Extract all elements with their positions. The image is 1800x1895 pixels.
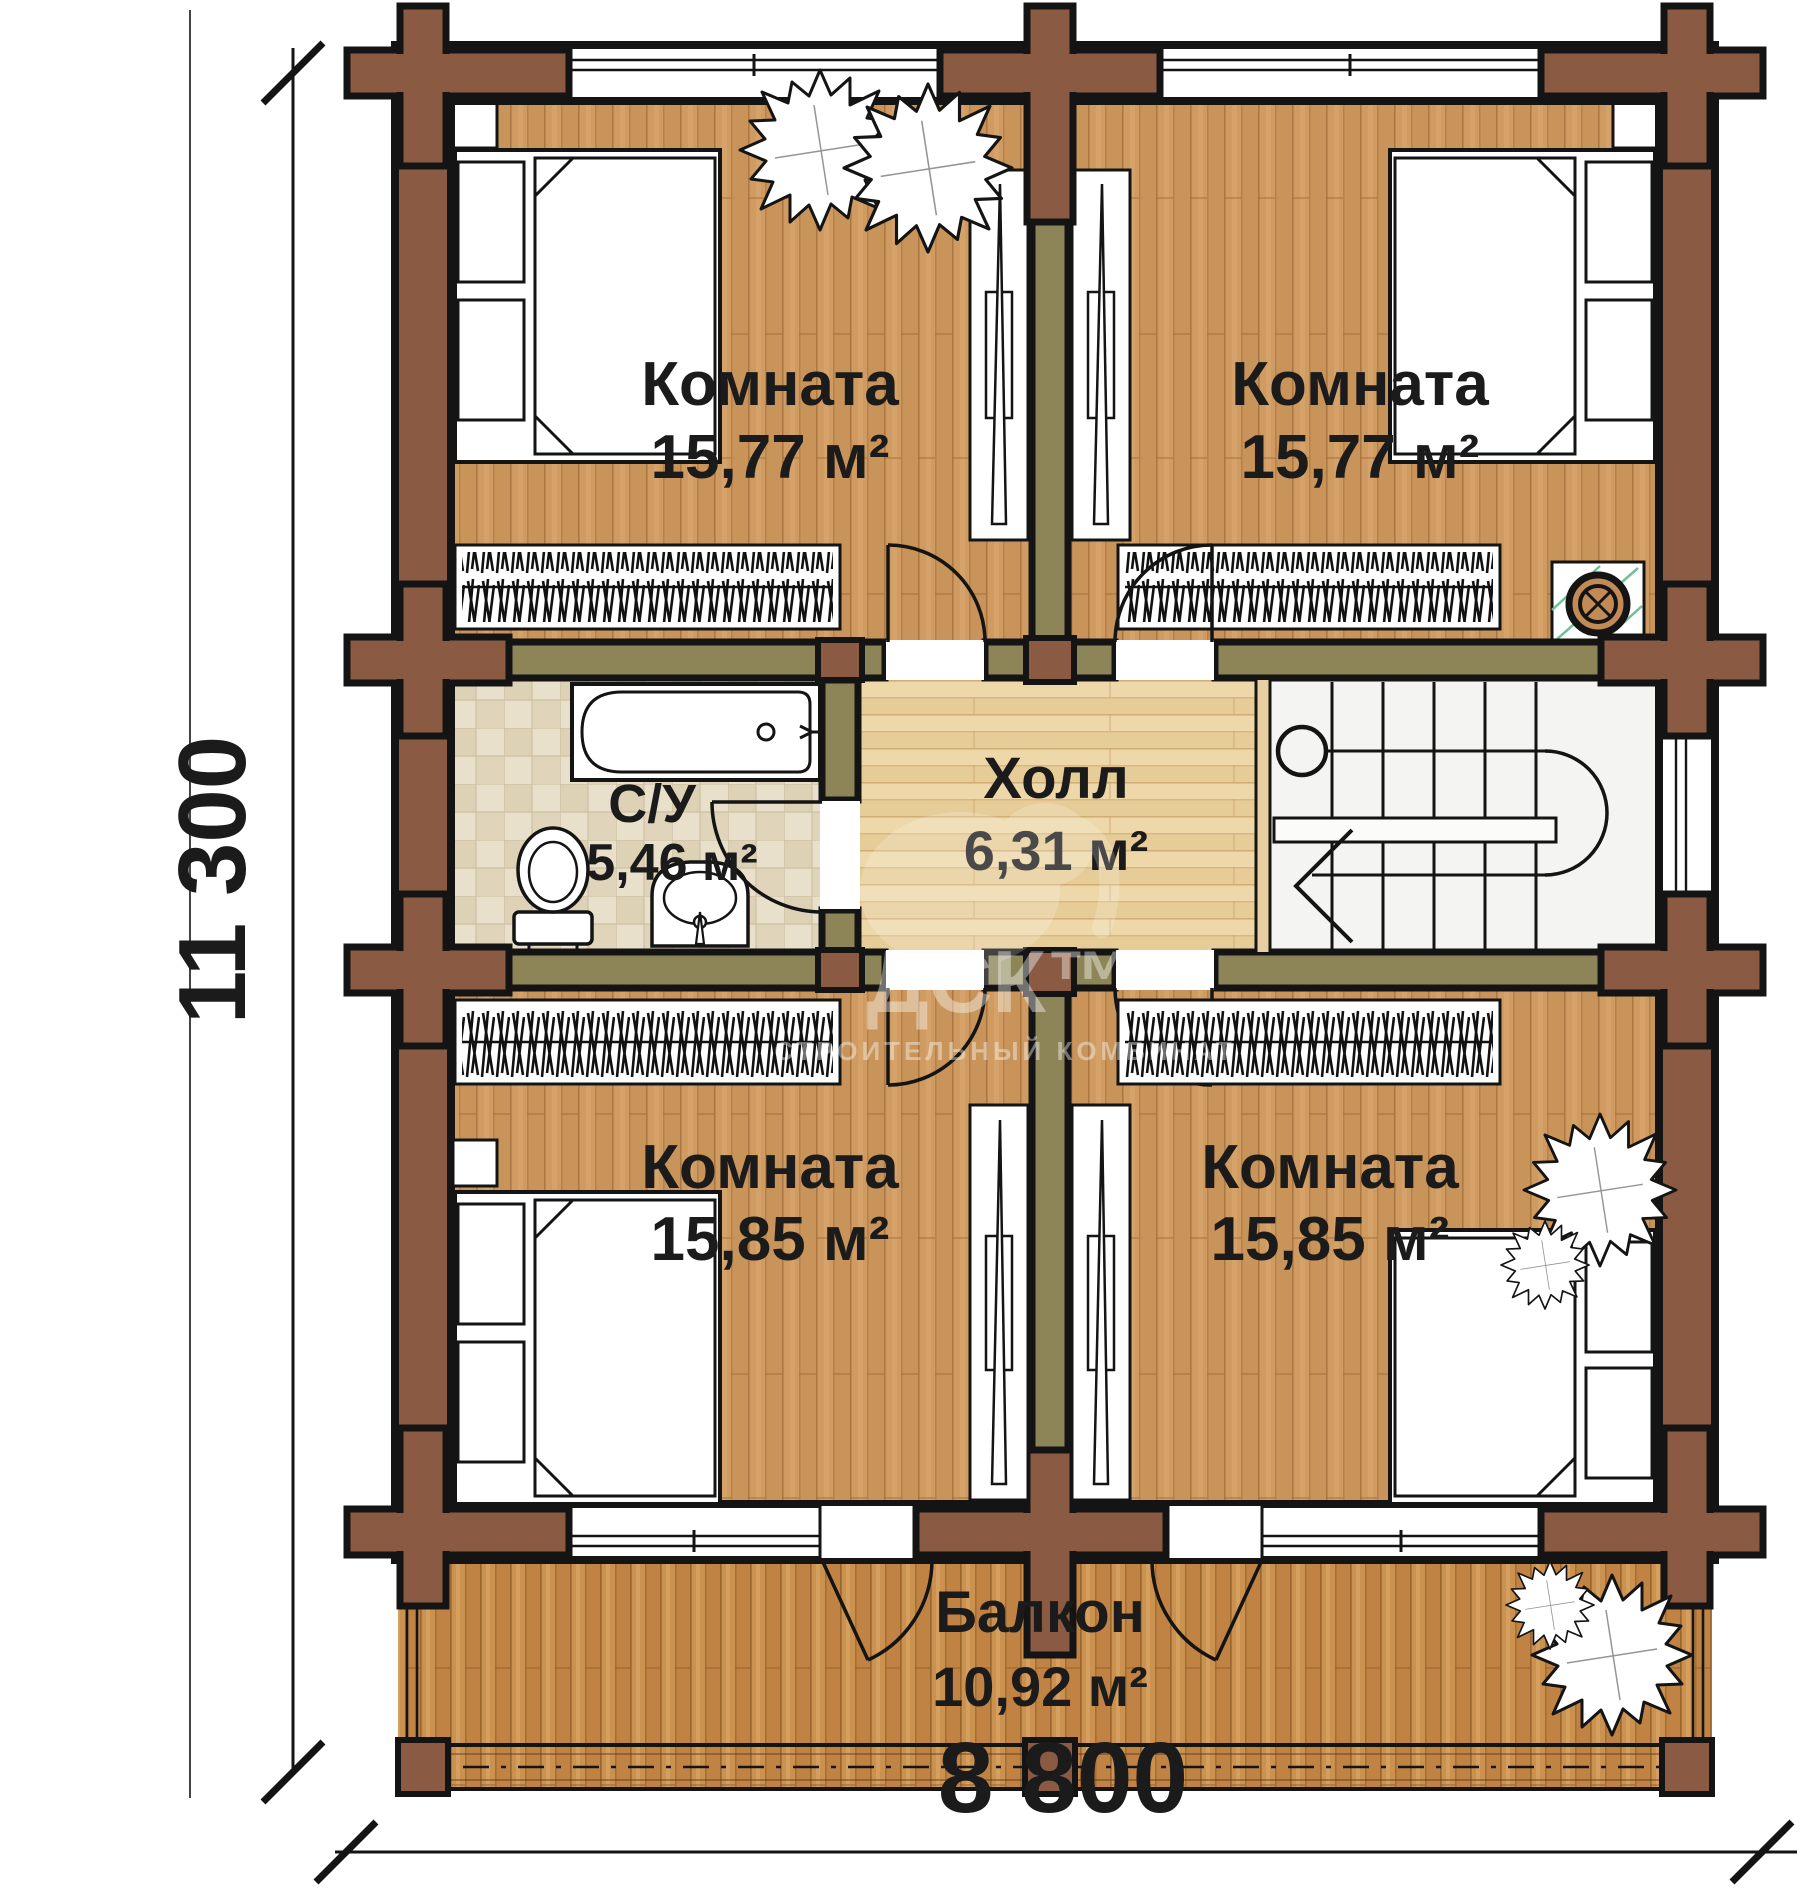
stair-newel (1278, 727, 1326, 775)
toilet (514, 828, 592, 950)
wardrobe (1072, 1105, 1130, 1500)
room-label: Холл (983, 746, 1129, 811)
bathtub (572, 684, 820, 780)
stove-flue (1552, 562, 1644, 646)
plant-icon (844, 84, 1012, 252)
wardrobe (970, 1105, 1028, 1500)
floor-plan-page: Комната 15,77 м² Комната 15,77 м² С/У 5,… (0, 0, 1800, 1895)
nightstand (453, 1140, 497, 1186)
room-area: 15,85 м² (1211, 1205, 1450, 1274)
room-label: Комната (1201, 1133, 1459, 1202)
dimension-left: 11 300 (159, 10, 323, 1802)
plant-icon (1501, 1221, 1589, 1309)
floor-plan-drawing: Комната 15,77 м² Комната 15,77 м² С/У 5,… (0, 0, 1800, 1895)
room-label: Комната (641, 350, 899, 419)
dimension-depth-label: 11 300 (159, 736, 266, 1024)
room-area: 15,77 м² (1241, 423, 1480, 492)
room-area: 15,77 м² (651, 423, 890, 492)
plant-icon (1506, 1561, 1594, 1649)
room-area: 10,92 м² (932, 1655, 1148, 1718)
dimension-width-label: 8 800 (938, 1722, 1188, 1834)
window (1160, 49, 1541, 97)
stair-floor (1270, 680, 1659, 952)
wardrobe (1072, 170, 1130, 540)
stair-landing-rail (1274, 818, 1556, 842)
room-label: Комната (1231, 350, 1489, 419)
window (1262, 1508, 1541, 1556)
radiator (1118, 1000, 1500, 1084)
radiator (455, 1000, 840, 1084)
room-label: Комната (641, 1133, 899, 1202)
hall-stairs-divider (1256, 680, 1270, 952)
nightstand (453, 102, 497, 148)
room-label: С/У (608, 774, 697, 834)
radiator (455, 545, 840, 629)
window (569, 1508, 820, 1556)
room-area: 5,46 м² (586, 834, 757, 892)
room-label: Балкон (935, 1580, 1145, 1645)
window (569, 49, 940, 97)
radiator (1118, 545, 1500, 629)
nightstand (1613, 102, 1657, 148)
room-area: 15,85 м² (651, 1205, 890, 1274)
window (1663, 728, 1711, 902)
room-area: 6,31 м² (964, 819, 1149, 882)
hall-floor (858, 680, 1256, 952)
